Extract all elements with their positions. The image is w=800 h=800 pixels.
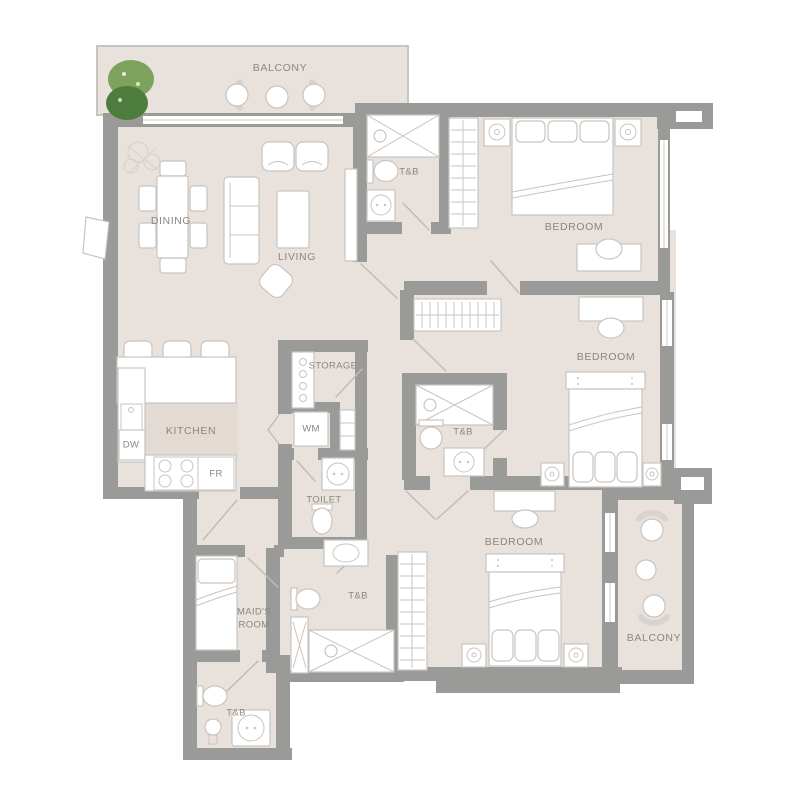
room-label-storage: STORAGE xyxy=(309,361,358,372)
bed-footboard xyxy=(486,554,564,572)
toilet xyxy=(197,686,203,706)
pillow xyxy=(492,630,513,661)
label-dishwasher: DW xyxy=(123,440,140,451)
chair xyxy=(596,239,622,259)
nightstand xyxy=(615,119,641,146)
chair xyxy=(598,318,624,338)
toilet xyxy=(367,160,373,183)
room-label-balcony-top: BALCONY xyxy=(253,62,307,74)
shower-drain xyxy=(424,399,436,411)
dining-chair xyxy=(190,223,207,248)
pillow xyxy=(538,630,559,661)
room-label-kitchen: KITCHEN xyxy=(166,425,216,437)
pillow xyxy=(595,452,615,482)
dining-chair xyxy=(160,258,186,273)
ac-unit xyxy=(83,217,109,259)
room-label-bedroom2: BEDROOM xyxy=(577,351,635,363)
shower-drain xyxy=(374,130,386,142)
room-label-bedroom3: BEDROOM xyxy=(485,536,543,548)
room-label-dining: DINING xyxy=(151,215,191,227)
nightstand xyxy=(541,463,564,486)
closet-shelf xyxy=(340,410,355,450)
pedestal-sink xyxy=(205,719,221,735)
coffee-table xyxy=(277,191,309,248)
armchair xyxy=(262,142,294,171)
chair xyxy=(512,510,538,528)
balcony-table-icon xyxy=(636,560,656,580)
pillow xyxy=(198,559,235,583)
bed-footboard xyxy=(566,372,645,389)
room-label-toilet: TOILET xyxy=(306,495,341,506)
room-label-tb1: T&B xyxy=(399,167,419,178)
floor-plan-drawing xyxy=(0,0,800,800)
room-label-living: LIVING xyxy=(278,251,316,263)
room-label-maids-room: MAID'S ROOM xyxy=(237,606,271,633)
sofa xyxy=(224,177,259,264)
dining-chair xyxy=(160,161,186,176)
desk xyxy=(494,491,555,511)
pillow xyxy=(617,452,637,482)
toilet xyxy=(419,420,443,426)
pillow xyxy=(516,121,545,142)
label-fridge: FR xyxy=(209,469,222,480)
floor-plan: BALCONY DINING LIVING T&B BEDROOM BEDROO… xyxy=(0,0,800,800)
pillow xyxy=(515,630,536,661)
pillow xyxy=(580,121,609,142)
room-label-tb3: T&B xyxy=(348,591,368,602)
tv-console xyxy=(345,169,357,261)
shower-drain xyxy=(325,645,337,657)
label-washing-machine: WM xyxy=(302,424,320,435)
pillow xyxy=(573,452,593,482)
room-label-balcony-bottom: BALCONY xyxy=(627,632,681,644)
room-label-tb4: T&B xyxy=(226,708,246,719)
balcony-table-icon xyxy=(266,86,288,108)
nightstand xyxy=(462,644,486,667)
dining-chair xyxy=(190,186,207,211)
armchair xyxy=(296,142,328,171)
dining-chair xyxy=(139,186,156,211)
room-label-tb2: T&B xyxy=(453,427,473,438)
nightstand xyxy=(564,644,588,667)
room-label-bedroom1: BEDROOM xyxy=(545,221,603,233)
nightstand xyxy=(484,119,510,146)
pillow xyxy=(548,121,577,142)
